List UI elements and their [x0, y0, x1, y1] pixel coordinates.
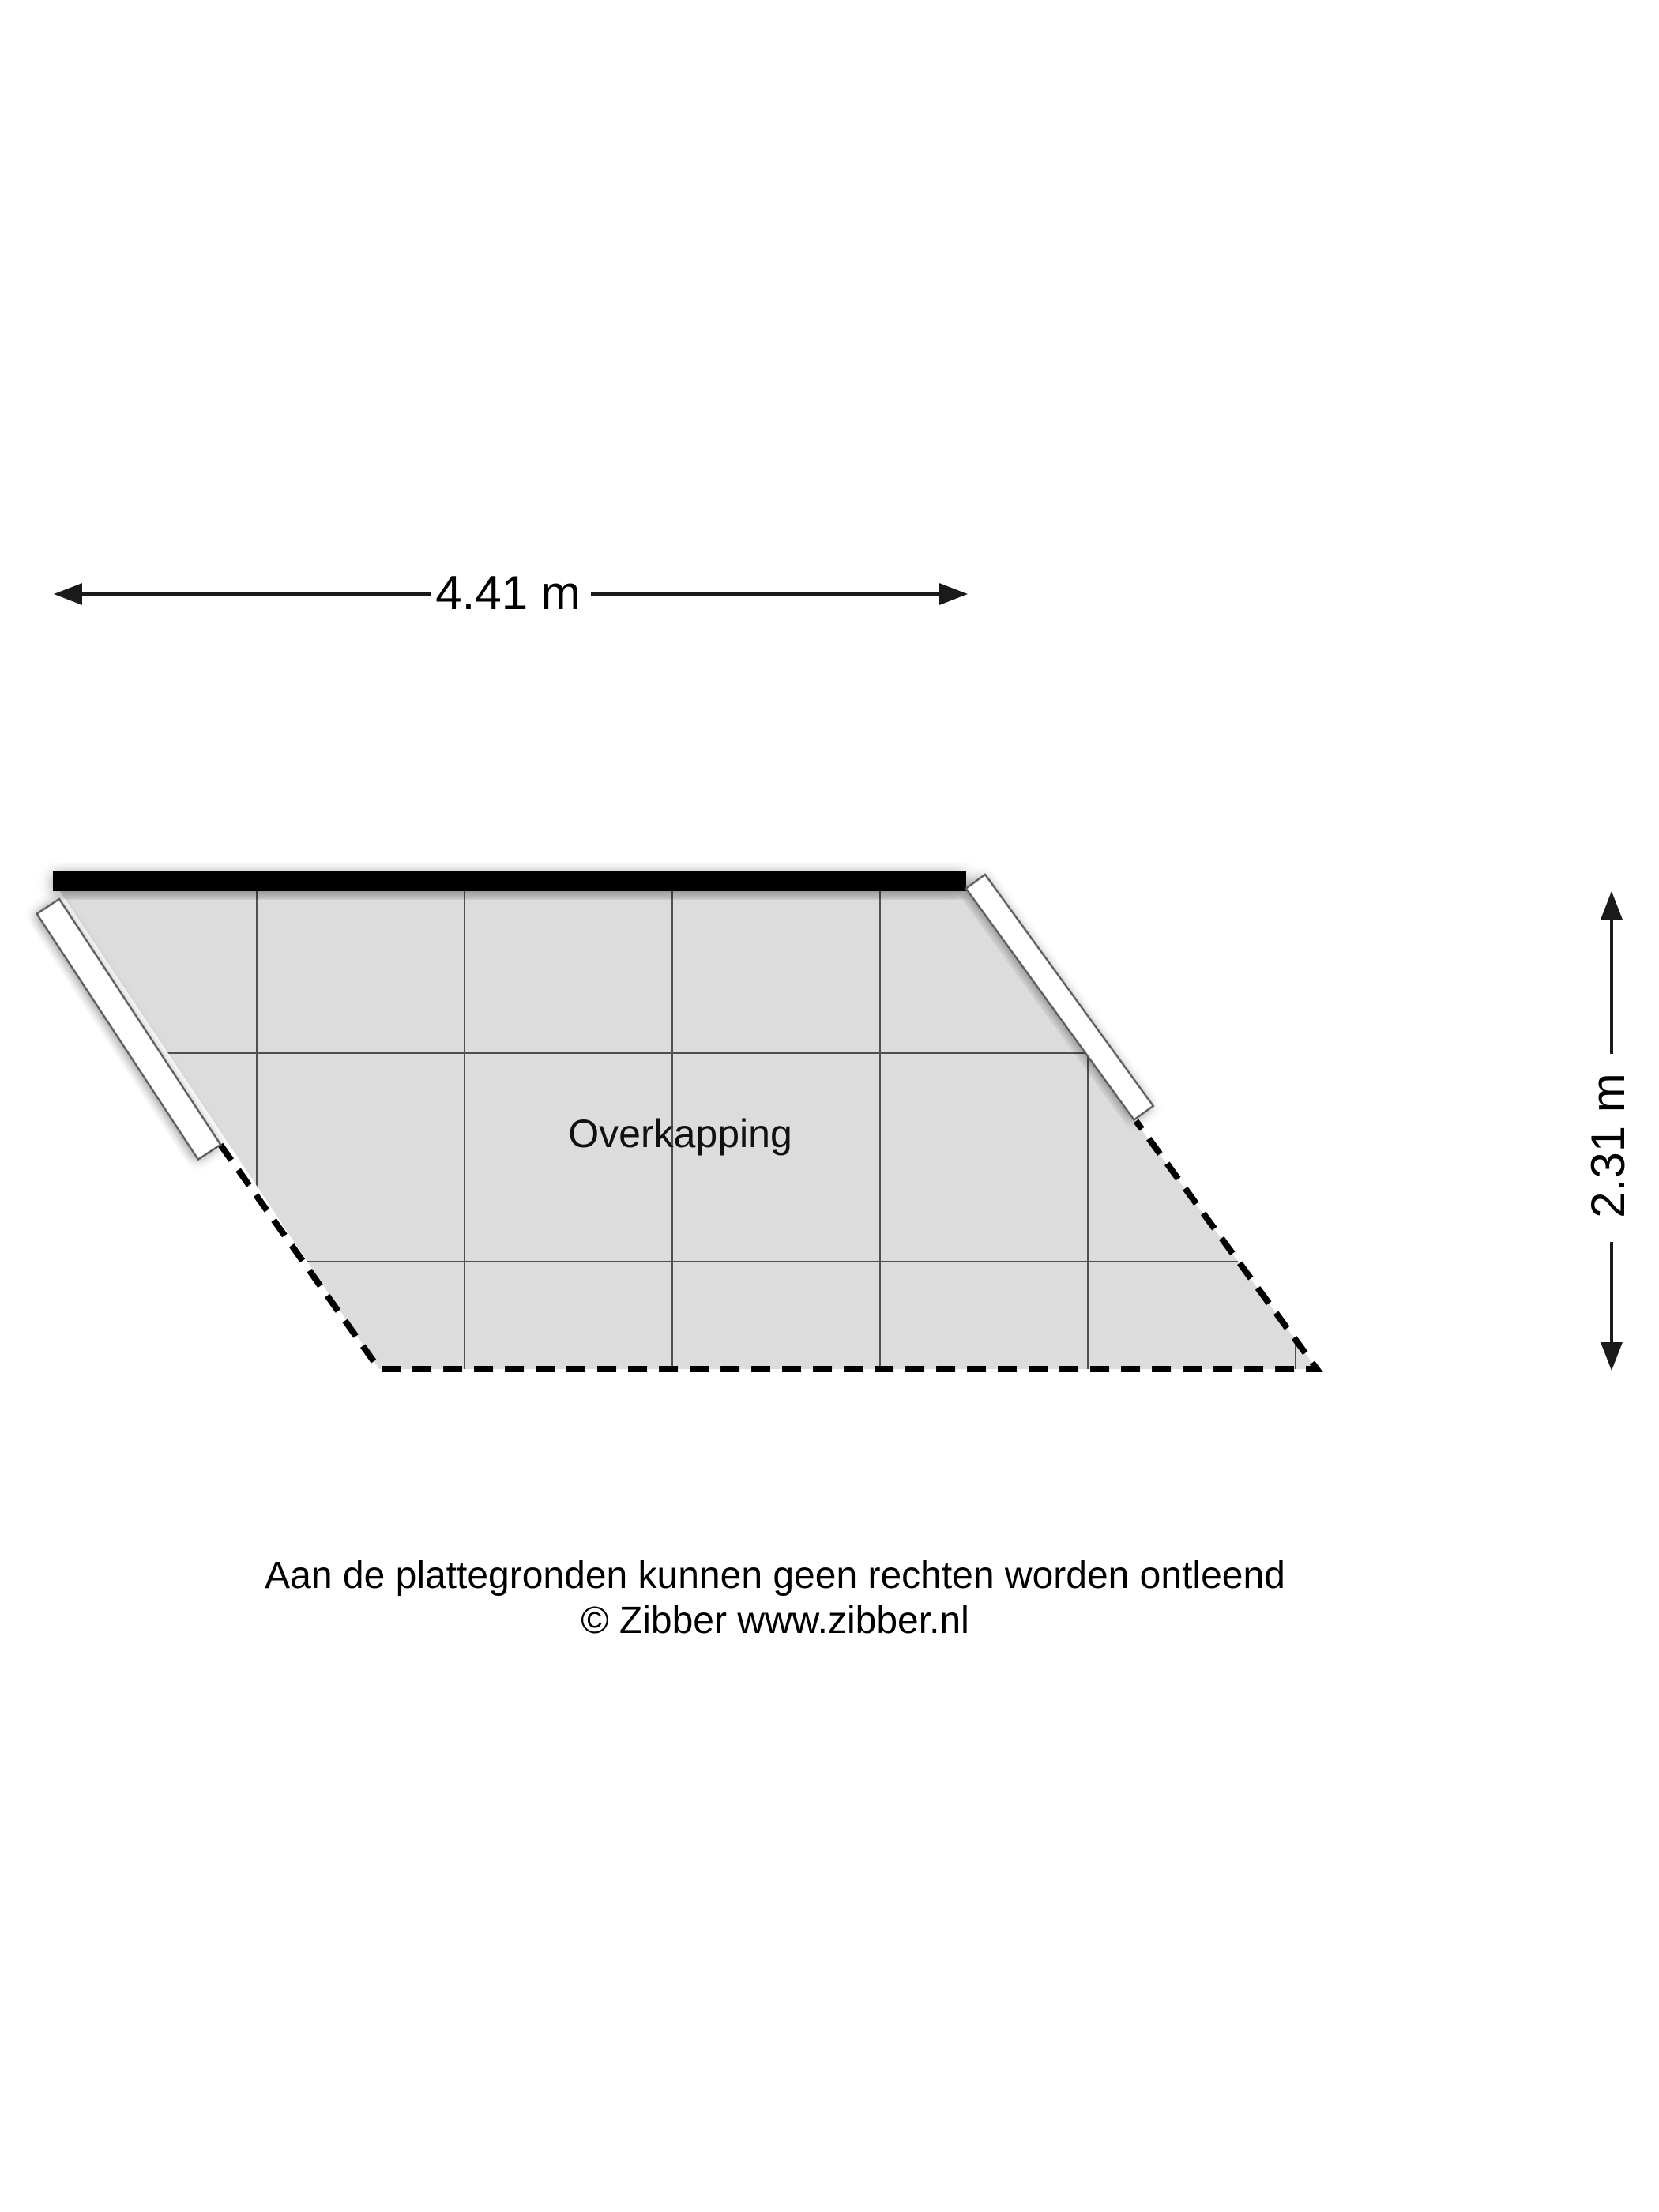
disclaimer-text: Aan de plattegronden kunnen geen rechten…: [265, 1555, 1285, 1597]
height-dimension: 2.31 m: [1582, 891, 1635, 1371]
height-dimension-arrowhead-top: [1601, 891, 1623, 920]
copyright-text: © Zibber www.zibber.nl: [581, 1600, 969, 1642]
width-dimension: 4.41 m: [54, 566, 968, 619]
height-dimension-arrowhead-bottom: [1601, 1342, 1623, 1371]
floorplan-page: 4.41 m 2.31 m: [0, 0, 1659, 2212]
top-wall: [53, 871, 966, 891]
width-dimension-arrowhead-left: [54, 583, 82, 605]
width-dimension-label: 4.41 m: [435, 566, 580, 619]
room-label: Overkapping: [568, 1112, 792, 1156]
height-dimension-label: 2.31 m: [1582, 1073, 1635, 1217]
floorplan-canvas: 4.41 m 2.31 m: [0, 0, 1659, 2212]
width-dimension-arrowhead-right: [939, 583, 968, 605]
